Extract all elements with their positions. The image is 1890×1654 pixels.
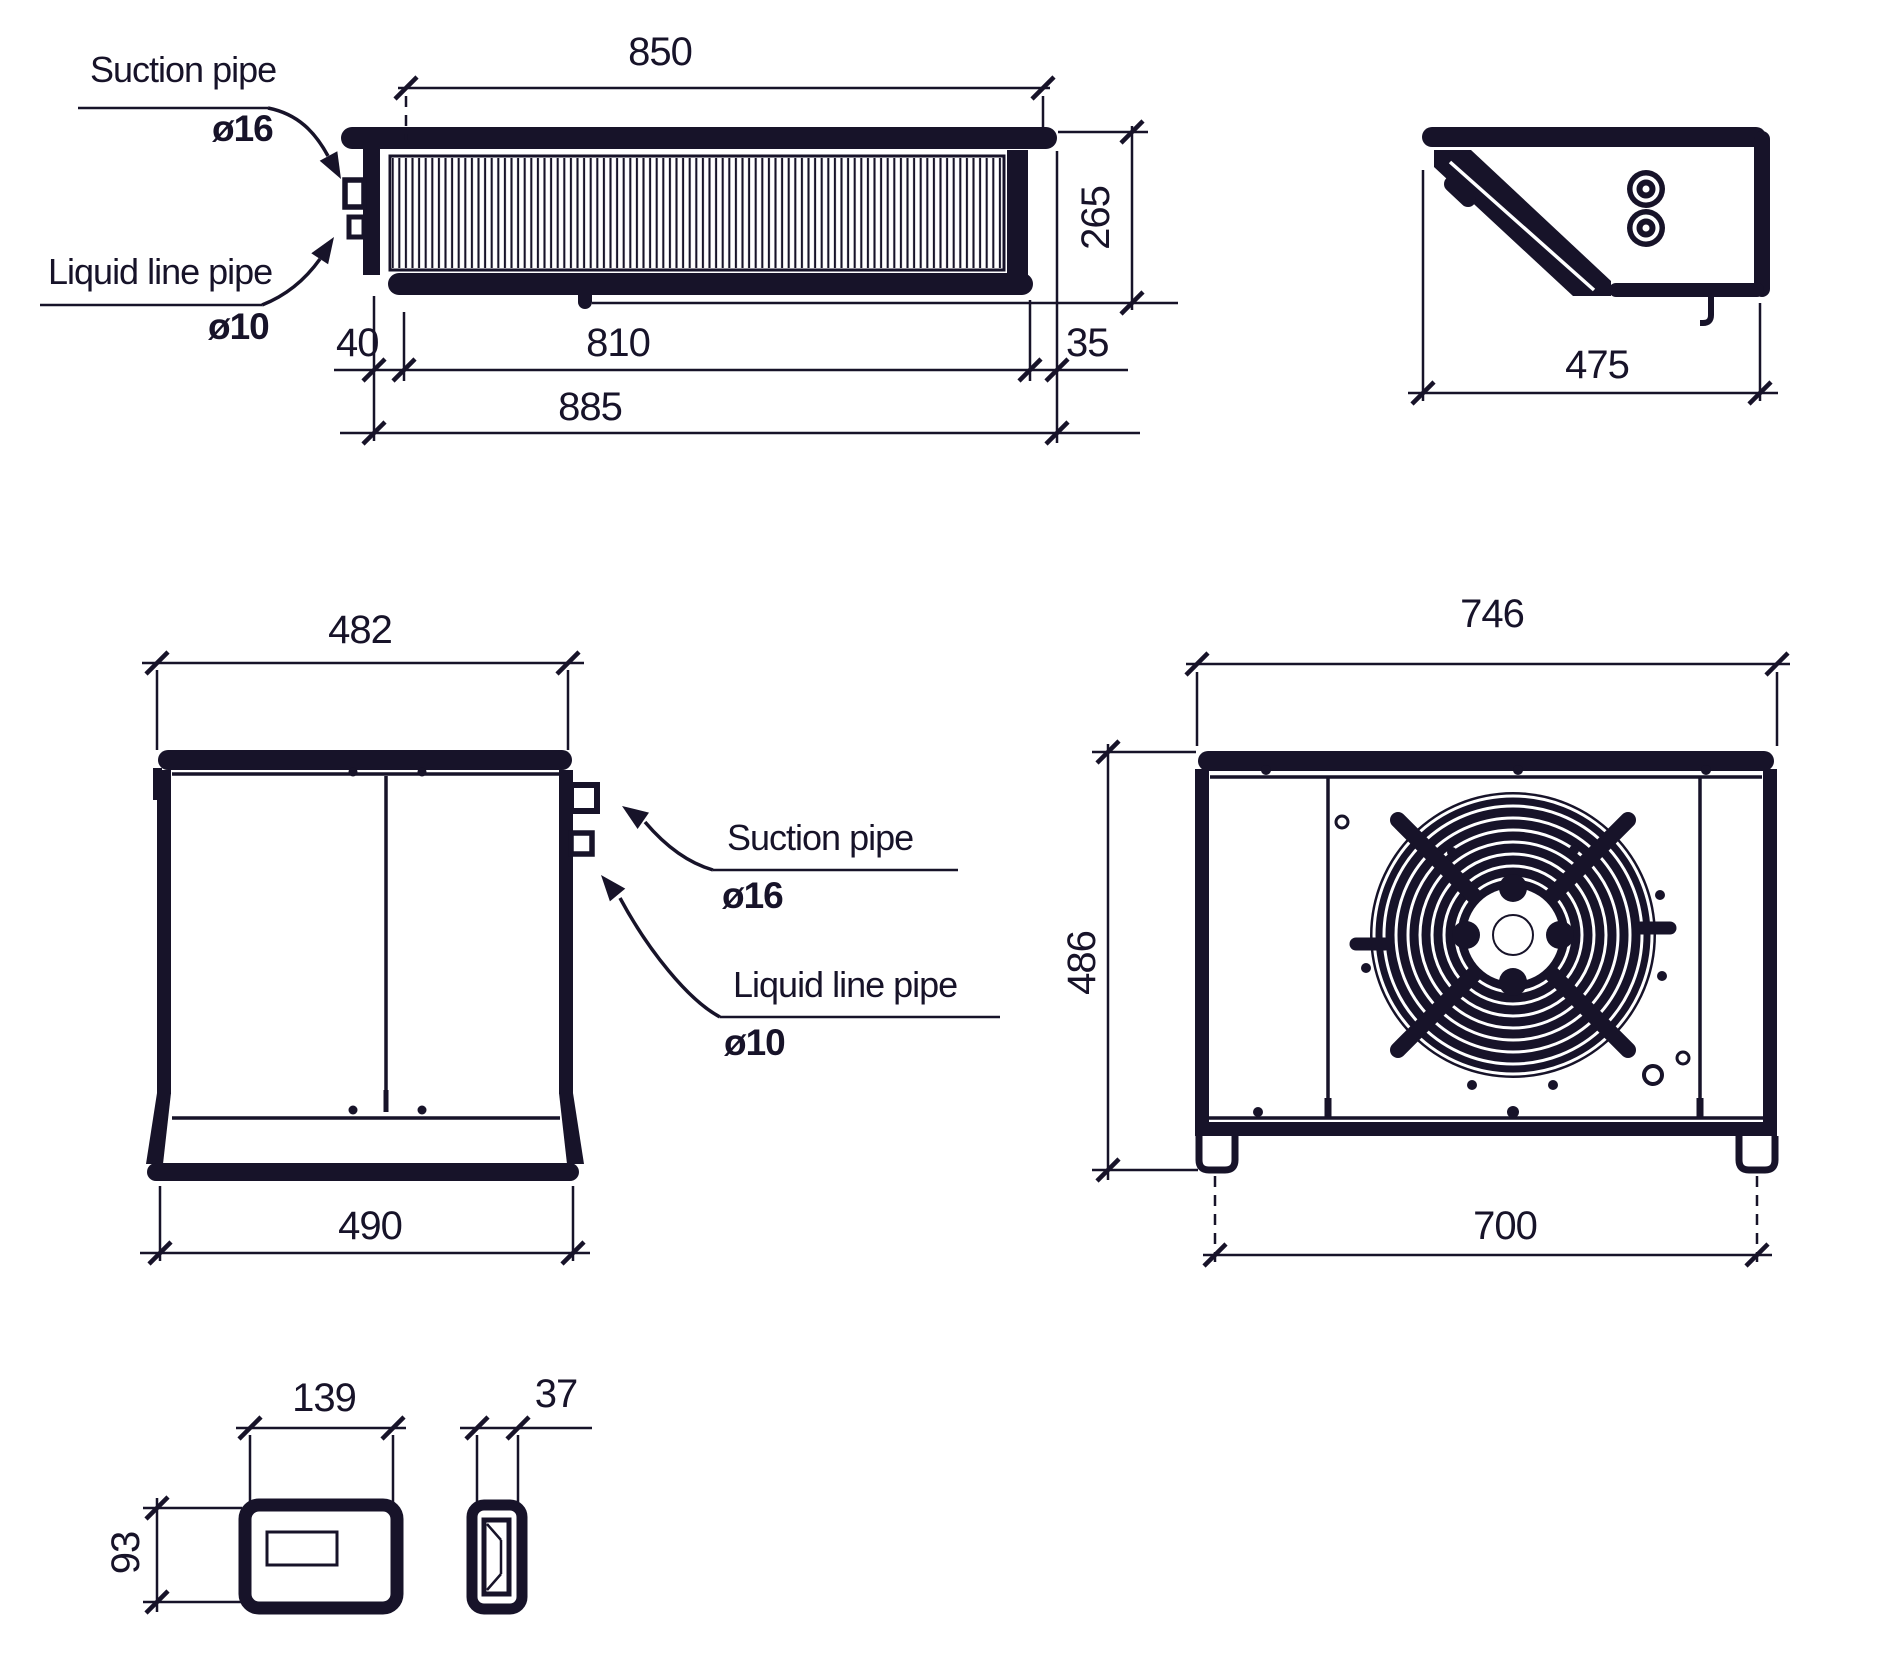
liquid-diameter-side-view: ø10 bbox=[724, 1024, 785, 1061]
dim-265: 265 bbox=[1076, 186, 1116, 250]
dim-490: 490 bbox=[338, 1206, 402, 1246]
controller-side-view bbox=[460, 1417, 592, 1609]
dim-475: 475 bbox=[1565, 345, 1629, 385]
technical-drawing-canvas: Suction pipe ø16 Liquid line pipe ø10 85… bbox=[0, 0, 1890, 1654]
dim-482: 482 bbox=[328, 610, 392, 650]
liquid-pipe-label-top-view: Liquid line pipe bbox=[48, 254, 272, 290]
suction-diameter-top-view: ø16 bbox=[212, 110, 273, 147]
drawing-linework bbox=[0, 0, 1890, 1654]
controller-front-view bbox=[143, 1417, 406, 1613]
dim-810: 810 bbox=[586, 323, 650, 363]
dim-35: 35 bbox=[1066, 323, 1109, 363]
evaporator-side-view bbox=[140, 652, 1000, 1264]
suction-diameter-side-view: ø16 bbox=[722, 877, 783, 914]
liquid-pipe-label-side-view: Liquid line pipe bbox=[733, 967, 957, 1003]
dim-850: 850 bbox=[628, 32, 692, 72]
liquid-diameter-top-view: ø10 bbox=[208, 308, 269, 345]
dim-93: 93 bbox=[106, 1532, 146, 1575]
dim-40: 40 bbox=[336, 323, 379, 363]
dim-37: 37 bbox=[535, 1374, 578, 1414]
dim-139: 139 bbox=[292, 1378, 356, 1418]
dim-746: 746 bbox=[1460, 594, 1524, 634]
dim-885: 885 bbox=[558, 387, 622, 427]
fan-grille bbox=[1356, 792, 1670, 1078]
suction-pipe-label-side-view: Suction pipe bbox=[727, 820, 913, 856]
suction-pipe-label-top-view: Suction pipe bbox=[90, 52, 276, 88]
dim-486: 486 bbox=[1062, 931, 1102, 995]
condensing-unit-front-view bbox=[1092, 653, 1790, 1266]
dim-700: 700 bbox=[1473, 1206, 1537, 1246]
